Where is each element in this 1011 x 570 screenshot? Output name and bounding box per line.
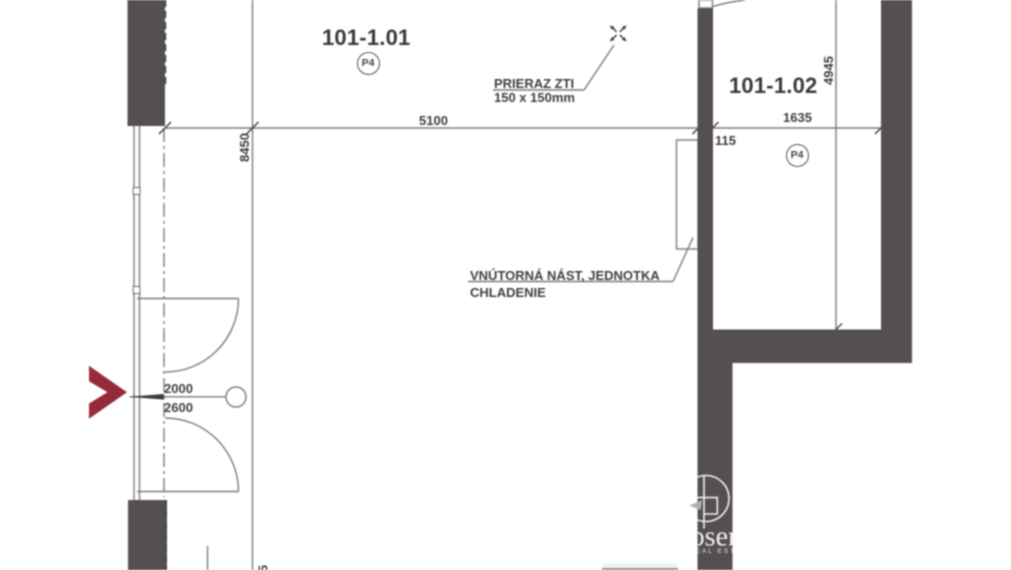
svg-text:REAL ESTATE: REAL ESTATE	[689, 548, 754, 555]
